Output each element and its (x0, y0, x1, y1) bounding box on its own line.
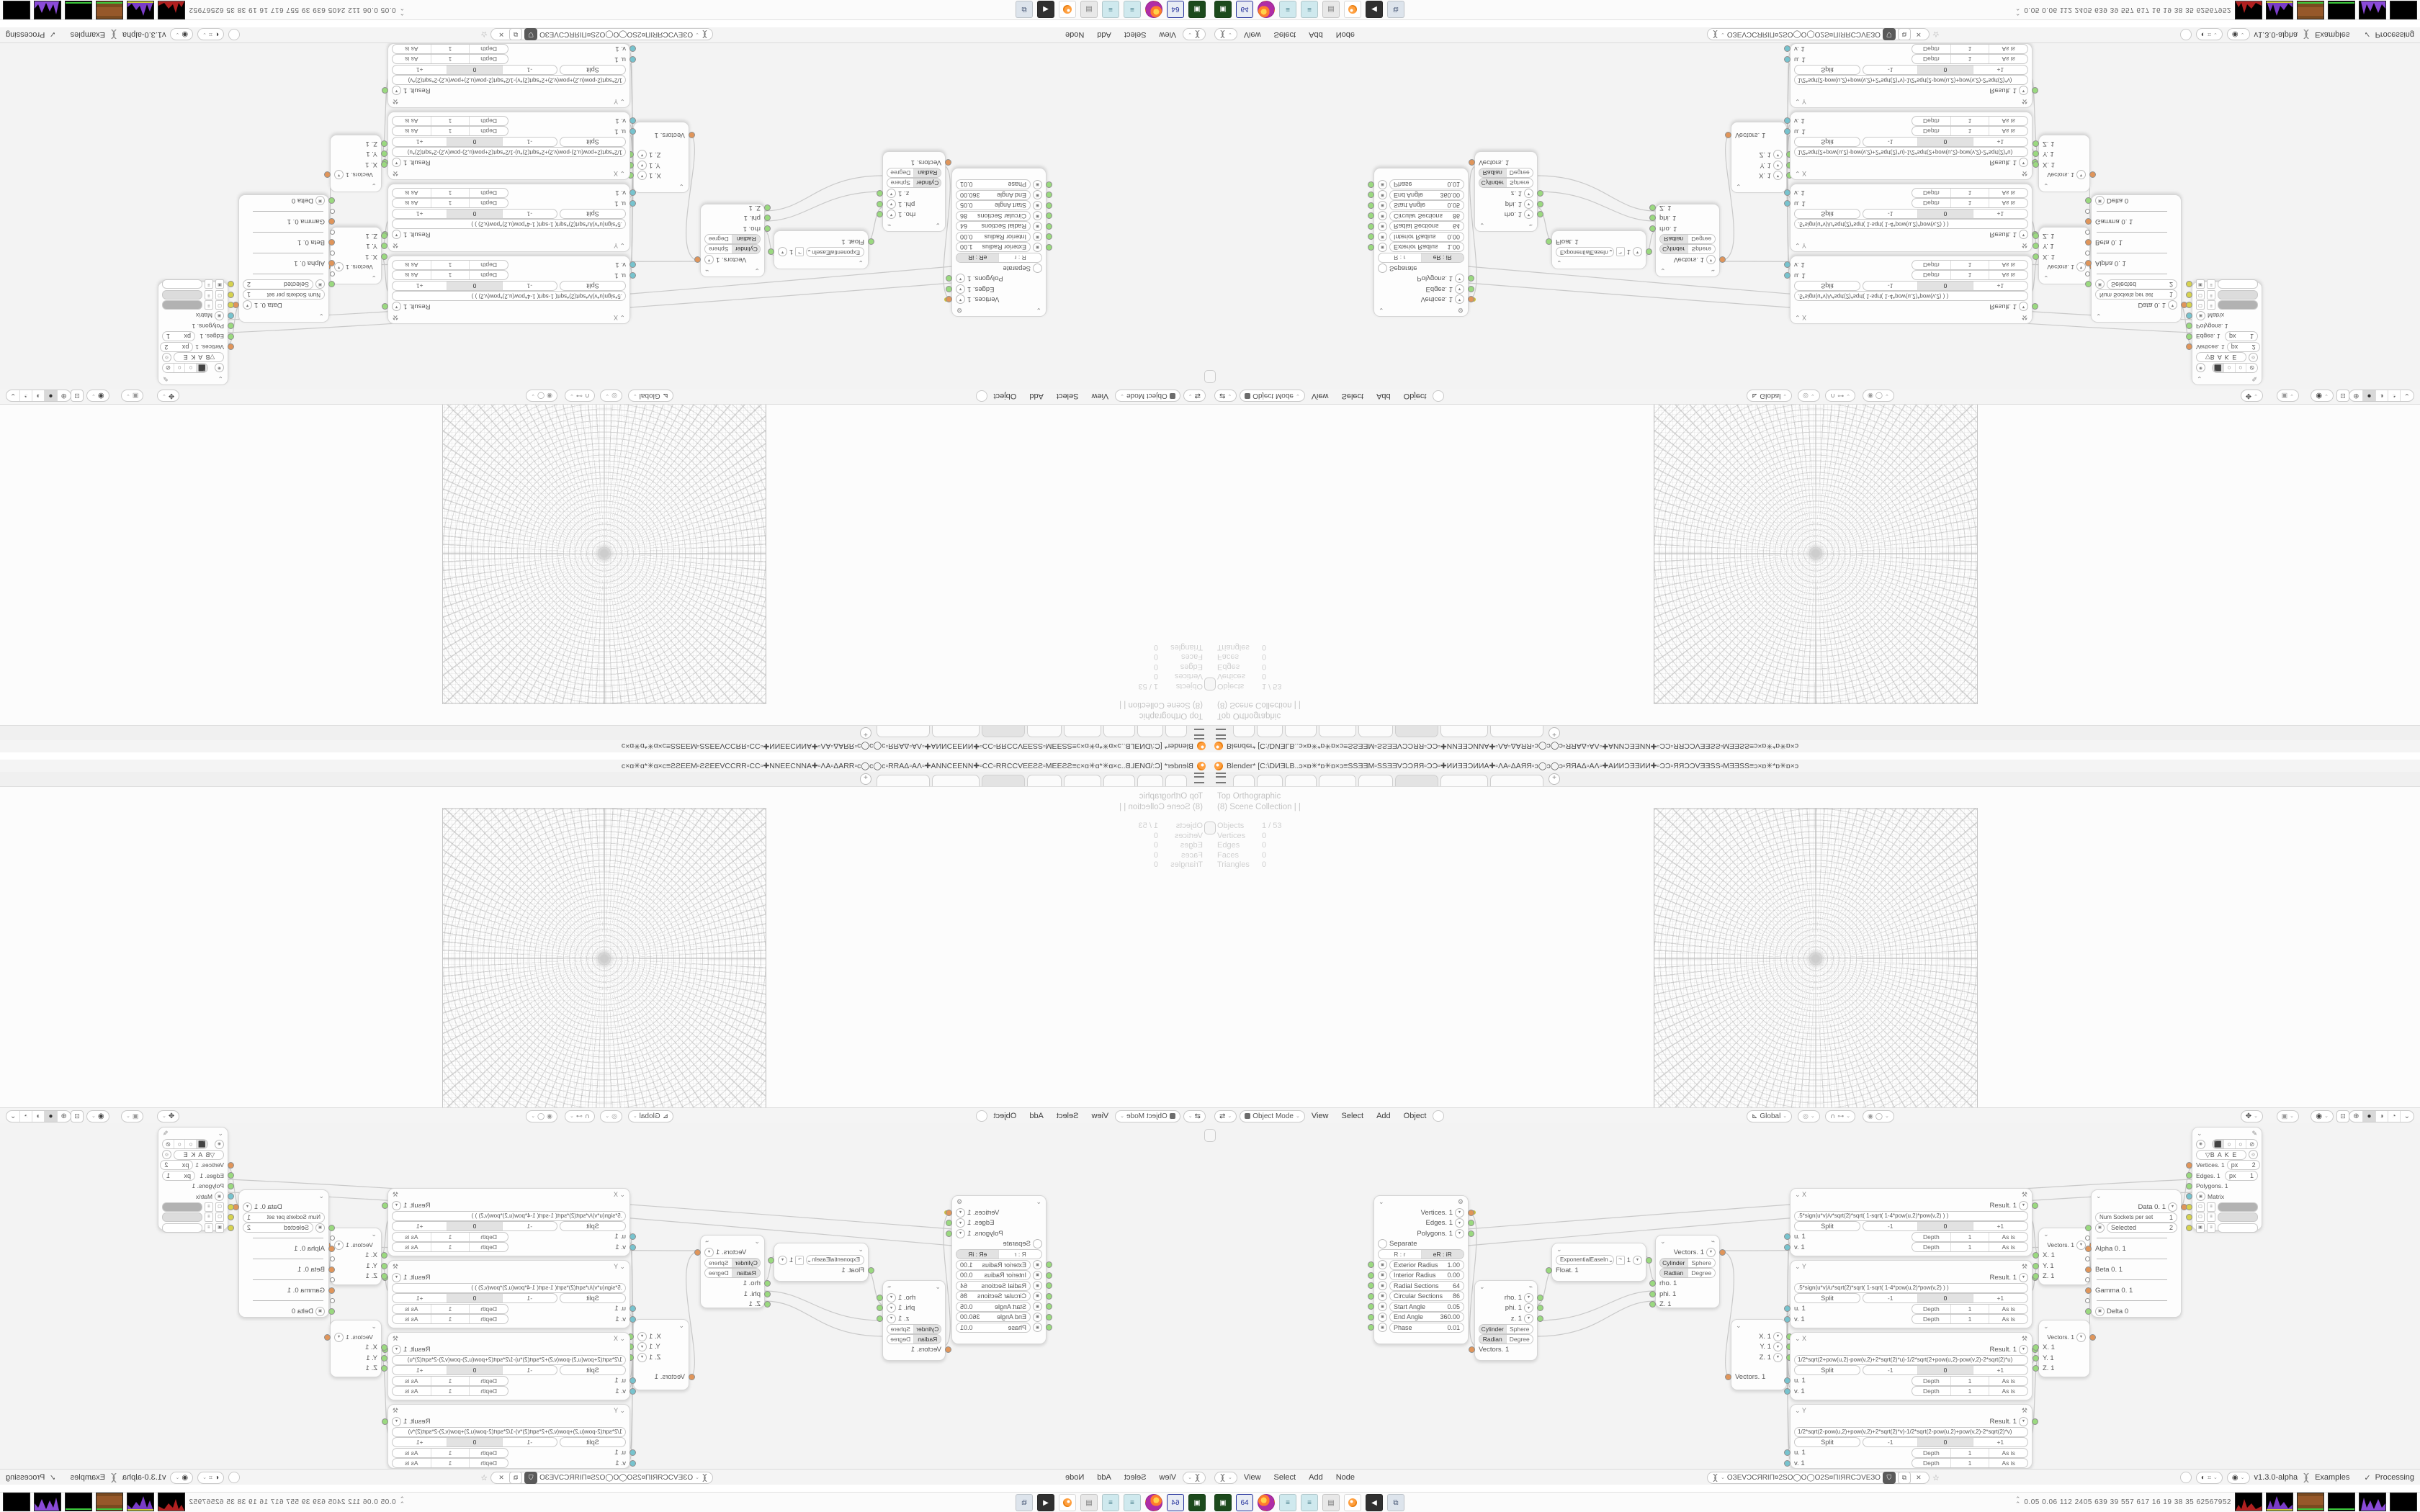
node-torus[interactable]: ⌄⚙ Vertices. 1▼ Edges. 1▼ Polygons. 1▼ S… (951, 1195, 1047, 1344)
num-sockets-field[interactable]: Num Sockets per set1 (243, 290, 325, 300)
display-verts-button[interactable]: ⬛ (196, 1140, 207, 1148)
vert-icon[interactable]: ▢ (215, 301, 224, 310)
workspace-tab-1[interactable] (1233, 726, 1255, 737)
socket-menu-button[interactable]: ▼ (1773, 150, 1783, 160)
input-socket-v[interactable] (1784, 1316, 1791, 1323)
display-dropdown[interactable]: ◉⌄ (170, 29, 193, 41)
input-socket-v[interactable] (629, 1316, 636, 1323)
input-socket-alpha[interactable] (328, 1246, 335, 1252)
menu-add[interactable]: Add (1029, 1112, 1044, 1120)
node-formula-y1[interactable]: ⌄ Y⚒ Result. 1▼ .5*sign(u*v)/u*sqrt(2)*s… (387, 184, 630, 252)
phase-slider[interactable]: Phase0.01 (956, 180, 1031, 190)
snap-dropdown[interactable]: ∩⊶⌄ (565, 390, 595, 402)
blank-socket[interactable] (2085, 1277, 2090, 1282)
output-socket-vectors[interactable] (2089, 1334, 2096, 1341)
collapse-chevron-icon[interactable]: ⌄ (218, 374, 223, 382)
xray-toggle-button[interactable]: ⊡ (2336, 1110, 2349, 1122)
shading-material-button[interactable]: ◑ (32, 1111, 44, 1122)
end-angle-slider[interactable]: End Angle360.00 (956, 1312, 1031, 1322)
viewport-3d[interactable]: Top Orthographic (8) Scene Collection | … (1210, 786, 2420, 1108)
split-button[interactable]: Split (560, 65, 626, 75)
edge-icon[interactable]: ▢ (215, 290, 224, 300)
input-socket-x[interactable] (2033, 253, 2039, 260)
socket-menu-button[interactable]: ▼ (2019, 302, 2028, 312)
collapse-chevron-icon[interactable]: ⌄ (1556, 1246, 1562, 1254)
workspace-tab-7[interactable] (932, 726, 980, 737)
socket-menu-button[interactable]: ▼ (637, 1332, 647, 1341)
input-socket-float[interactable] (868, 1267, 874, 1274)
taskbar-app-firefox-icon[interactable] (1258, 1, 1275, 18)
hamburger-menu-icon[interactable] (1194, 773, 1204, 783)
workspace-tab-8[interactable] (877, 726, 930, 737)
socket-menu-button[interactable]: ▼ (392, 1273, 401, 1282)
node-formula-x2[interactable]: ⌄ X⚒ Result. 1▼ 1/2*sqrt(2+pow(u,2)-pow(… (1790, 1332, 2033, 1400)
bake-button[interactable]: ▽ B A K E (174, 353, 224, 363)
interior-radius-slider[interactable]: Interior Radius0.00 (956, 232, 1031, 242)
node-viewer-draw[interactable]: ⌄✎ ◉⬛○○⊘ ▽ B A K E◎ Vertices. 1px2 Edges… (158, 282, 228, 385)
xray-dropdown[interactable]: ◉⌄ (86, 1110, 109, 1122)
display-verts-button[interactable]: ⬛ (2213, 1140, 2224, 1148)
socket-menu-button[interactable]: ▼ (2168, 1202, 2177, 1212)
add-workspace-button[interactable]: + (860, 727, 871, 739)
pin-icon[interactable]: ☆ (480, 30, 488, 40)
input-socket-gamma[interactable] (2085, 219, 2092, 225)
socket-menu-button[interactable]: ▼ (637, 161, 647, 170)
workspace-tab-2[interactable] (1137, 775, 1163, 786)
show-overlays-dropdown[interactable]: ▣⌄ (2277, 390, 2299, 402)
input-socket[interactable] (1046, 1324, 1052, 1331)
pivot-point-dropdown[interactable]: ◎⌄ (600, 390, 622, 402)
formula-input[interactable]: .5*sign(u*v)/v*sqrt(2)*sqrt( 1-sqrt( 1-4… (392, 1211, 626, 1221)
pivot-point-dropdown[interactable]: ◎⌄ (600, 1110, 622, 1122)
collapse-chevron-icon[interactable]: ⌄ (1556, 258, 1562, 266)
input-socket-vectors[interactable] (1469, 1346, 1475, 1353)
collapse-chevron-icon[interactable]: ⌄ (1660, 1238, 1666, 1246)
socket-menu-button[interactable]: ▼ (2076, 263, 2086, 272)
node-easing[interactable]: ⌄ ExponentialEaseIn⌄↷1▼ Float. 1 (774, 230, 869, 269)
vertex-color-swatch[interactable] (2218, 301, 2258, 310)
input-socket-phi[interactable] (764, 1291, 771, 1297)
socket-menu-button[interactable]: ▼ (392, 230, 401, 240)
input-socket-u[interactable] (629, 128, 636, 135)
shading-wireframe-button[interactable]: ⊕ (57, 1111, 71, 1122)
taskbar-app-notepad-icon[interactable]: ≡ (1279, 1, 1296, 18)
tree-selector[interactable]: ⌄ ОЗЕVϽСЯRIΠ¤2SO◯O◯O2S¤ΠIЯRСϽVЕЗО ⛉ ⧉ ✕ (490, 29, 713, 41)
input-socket-y[interactable] (2033, 151, 2039, 158)
socket-menu-button[interactable]: ▼ (778, 248, 787, 257)
sphere-option[interactable]: Sphere (1688, 246, 1716, 254)
display-edges-button[interactable]: ○ (2224, 1140, 2236, 1148)
display-edges-button[interactable]: ○ (185, 364, 197, 372)
input-socket-z[interactable] (2033, 140, 2039, 147)
collapse-chevron-icon[interactable]: ⌄ (754, 266, 760, 274)
list-icon[interactable]: ≡ (205, 1223, 213, 1233)
activate-toggle[interactable]: ◉ (215, 364, 224, 373)
socket-menu-button[interactable]: ▼ (334, 1333, 344, 1342)
node-vector-polar-output[interactable]: ⌄⌁ rho. 1▼ phi. 1▼ z. 1▼ CylinderSphere … (1474, 1280, 1538, 1361)
processing-toggle[interactable]: Processing (6, 30, 45, 39)
fake-user-shield-button[interactable]: ⛉ (524, 1472, 537, 1484)
socket-menu-button[interactable]: ▼ (1455, 284, 1464, 294)
workspace-tab-2[interactable] (1137, 726, 1163, 737)
input-socket[interactable] (1368, 1293, 1374, 1300)
examples-menu[interactable]: Examples (2315, 1473, 2349, 1482)
node-vector-polar-output[interactable]: ⌄⌁ rho. 1▼ phi. 1▼ z. 1▼ CylinderSphere … (882, 1280, 946, 1361)
tool-search-button[interactable] (1433, 1110, 1444, 1122)
proportional-editing-dropdown[interactable]: ◉◯⌄ (526, 1110, 557, 1122)
socket-menu-button[interactable]: ▼ (704, 256, 714, 265)
radian-option[interactable]: Radian (1479, 1335, 1507, 1344)
fake-user-shield-button[interactable]: ⛉ (1883, 29, 1896, 41)
toolbar-collapse-handle[interactable] (1204, 678, 1210, 690)
input-socket-float[interactable] (1546, 238, 1552, 245)
collapse-chevron-icon[interactable]: ⌄ (1379, 1198, 1384, 1206)
workspace-tab-1[interactable] (1165, 775, 1187, 786)
toolbar-collapse-handle[interactable] (1204, 822, 1210, 834)
draft-mode-dropdown[interactable]: ◐⌗⌄ (197, 29, 224, 41)
separate-toggle[interactable] (1033, 264, 1042, 273)
menu-view[interactable]: View (1244, 1473, 1261, 1482)
blank-socket[interactable] (330, 230, 335, 235)
wrap-plus[interactable]: +1 (393, 282, 447, 290)
input-socket-y[interactable] (381, 1263, 387, 1269)
input-socket-y[interactable] (381, 1355, 387, 1362)
socket-menu-button[interactable]: ▼ (1524, 1293, 1533, 1302)
cylinder-option[interactable]: Cylinder (1660, 1259, 1688, 1267)
output-socket-result[interactable] (2032, 1202, 2038, 1209)
vertex-color-swatch[interactable] (2218, 1202, 2258, 1212)
transform-orientation-dropdown[interactable]: ⊾Global⌄ (1747, 1110, 1792, 1122)
taskbar-app-speaker-icon[interactable]: ◀ (1037, 1, 1054, 18)
socket-menu-button[interactable]: ▼ (2076, 171, 2086, 180)
workspace-tab-4[interactable] (1319, 726, 1356, 737)
sphere-option[interactable]: Sphere (705, 1259, 732, 1267)
input-socket-v[interactable] (629, 1460, 636, 1467)
shading-solid-button[interactable]: ● (2363, 391, 2375, 402)
as-is-dropdown[interactable]: As is (393, 1233, 431, 1241)
input-socket-face-color[interactable] (2186, 1225, 2192, 1231)
edge-width-field[interactable]: px1 (162, 1171, 195, 1181)
list-icon[interactable]: ≡ (2207, 1202, 2215, 1212)
taskbar-app-notepad2-icon[interactable]: ≡ (1102, 1494, 1119, 1511)
input-socket-x[interactable] (381, 253, 387, 260)
output-socket[interactable] (768, 1257, 774, 1264)
socket-menu-button[interactable]: ▼ (392, 86, 401, 96)
formula-input[interactable]: .5*sign(u*v)/u*sqrt(2)*sqrt( 1-sqrt( 1-4… (392, 220, 626, 230)
radian-option[interactable]: Radian (1660, 235, 1688, 243)
xray-toggle-button[interactable]: ⊡ (71, 1110, 84, 1122)
input-socket-phi[interactable] (1649, 1291, 1656, 1297)
socket-menu-button[interactable]: ▼ (1706, 256, 1716, 265)
easing-mode-dropdown[interactable]: ExponentialEaseIn⌄ (806, 1255, 864, 1265)
input-socket-delta[interactable] (328, 1308, 335, 1315)
socket-menu-button[interactable]: ▼ (956, 1208, 965, 1218)
collapse-chevron-icon[interactable]: ⌄ X (1795, 1191, 1806, 1199)
menu-add[interactable]: Add (1309, 1473, 1323, 1482)
input-socket[interactable] (1368, 202, 1374, 209)
bake-button[interactable]: ▽ B A K E (174, 1150, 224, 1160)
interior-radius-slider[interactable]: Interior Radius0.00 (956, 1270, 1031, 1280)
collapse-chevron-icon[interactable]: ⌄ (371, 1230, 377, 1238)
processing-toggle[interactable]: Processing (2375, 1473, 2414, 1482)
input-socket-y[interactable] (2033, 1355, 2039, 1362)
extra-options-button[interactable]: ◎ (162, 353, 171, 362)
node-torus[interactable]: ⌄⚙ Vertices. 1▼ Edges. 1▼ Polygons. 1▼ S… (951, 168, 1047, 317)
node-formula-y1[interactable]: ⌄ Y⚒ Result. 1▼ .5*sign(u*v)/u*sqrt(2)*s… (387, 1260, 630, 1328)
node-formula-y1[interactable]: ⌄ Y⚒ Result. 1▼ .5*sign(u*v)/u*sqrt(2)*s… (1790, 1260, 2033, 1328)
output-socket[interactable] (768, 249, 774, 256)
input-socket-v[interactable] (1784, 46, 1791, 53)
input-socket-x[interactable] (381, 1344, 387, 1351)
display-verts-button[interactable]: ⬛ (2213, 364, 2224, 372)
formula-input[interactable]: 1/2*sqrt(2+pow(u,2)-pow(v,2)+2*sqrt(2)*u… (1794, 1355, 2028, 1365)
blank-socket[interactable] (330, 271, 335, 276)
node-vector-polar-input[interactable]: ⌄⌁ Vectors. 1▼ CylinderSphere RadianDegr… (700, 1235, 765, 1308)
input-socket[interactable] (1046, 1282, 1052, 1289)
input-socket-gamma[interactable] (2085, 1287, 2092, 1294)
workspace-tab-8[interactable] (877, 775, 930, 786)
edge-icon[interactable]: ▢ (215, 1212, 224, 1222)
socket-menu-button[interactable]: ▼ (1455, 295, 1464, 305)
input-socket-v[interactable] (629, 1388, 636, 1395)
cylinder-option[interactable]: Cylinder (732, 1259, 761, 1267)
input-socket[interactable] (1368, 1303, 1374, 1310)
collapse-chevron-icon[interactable]: ⌄ Y (1795, 1263, 1806, 1271)
node-formula-x1[interactable]: ⌄ X⚒ Result. 1▼ .5*sign(u*v)/v*sqrt(2)*s… (1790, 1188, 2033, 1256)
taskbar-app-notepad2-icon[interactable]: ≡ (1301, 1, 1318, 18)
editor-type-dropdown[interactable]: ⌄ (1214, 29, 1237, 41)
menu-select[interactable]: Select (1274, 30, 1296, 39)
face-icon[interactable]: ▣ (215, 280, 224, 289)
chevrons-up-icon[interactable]: ⌃⌃ (400, 1497, 405, 1507)
unlink-button[interactable]: ✕ (496, 30, 507, 40)
node-formula-y2[interactable]: ⌄ Y⚒ Result. 1▼ 1/2*sqrt(2-pow(u,2)+pow(… (1790, 43, 2033, 108)
pivot-point-dropdown[interactable]: ◎⌄ (1798, 1110, 1820, 1122)
input-socket-z[interactable] (2033, 1273, 2039, 1279)
workspace-tab-7[interactable] (1440, 775, 1488, 786)
socket-menu-button[interactable]: ▼ (1773, 1353, 1783, 1362)
output-socket-edges[interactable] (946, 1220, 952, 1226)
sphere-option[interactable]: Sphere (1507, 1325, 1533, 1333)
examples-menu[interactable]: Examples (2315, 30, 2349, 39)
input-socket-face-color[interactable] (228, 1225, 234, 1231)
socket-menu-button[interactable]: ▼ (334, 263, 344, 272)
chevrons-up-icon[interactable]: ⌃⌃ (400, 5, 405, 15)
workspace-tab-3[interactable] (1285, 775, 1317, 786)
input-socket[interactable] (1368, 1272, 1374, 1279)
input-socket-z[interactable] (764, 204, 771, 211)
split-button[interactable]: Split (560, 209, 626, 219)
input-socket-matrix[interactable] (228, 1193, 234, 1200)
menu-select[interactable]: Select (1342, 392, 1364, 400)
socket-menu-button[interactable]: ▼ (1455, 1218, 1464, 1228)
as-is-dropdown[interactable]: As is (1989, 271, 2027, 280)
radial-sections-slider[interactable]: Radial Sections64 (956, 222, 1031, 232)
list-icon[interactable]: ≡ (2207, 301, 2215, 310)
display-off-button[interactable]: ⊘ (2246, 364, 2257, 372)
list-icon[interactable]: ≡ (205, 280, 213, 289)
blank-socket[interactable] (2085, 1236, 2090, 1241)
workspace-tab-3[interactable] (1285, 726, 1317, 737)
collapse-chevron-icon[interactable]: ⌄ Y (614, 241, 625, 249)
radian-option[interactable]: Radian (732, 235, 761, 243)
input-socket-v[interactable] (1784, 1388, 1791, 1395)
formula-input[interactable]: .5*sign(u*v)/u*sqrt(2)*sqrt( 1-sqrt( 1-4… (392, 1283, 626, 1293)
extra-options-button[interactable]: ◎ (162, 1150, 171, 1159)
menu-select[interactable]: Select (1057, 392, 1079, 400)
taskbar-app-save64-icon[interactable]: 64 (1167, 1494, 1184, 1511)
output-socket-rho[interactable] (1537, 1295, 1543, 1301)
input-socket[interactable] (1046, 1293, 1052, 1300)
output-socket-result[interactable] (2032, 1418, 2038, 1425)
split-button[interactable]: Split (1794, 65, 1860, 75)
input-socket-vectors[interactable] (945, 1346, 951, 1353)
radian-option[interactable]: Radian (914, 1335, 941, 1344)
menu-view[interactable]: View (1159, 1473, 1176, 1482)
socket-menu-button[interactable]: ▼ (637, 171, 647, 181)
socket-menu-button[interactable]: ▼ (956, 1229, 965, 1238)
node-easing[interactable]: ⌄ ExponentialEaseIn⌄↷1▼ Float. 1 (1551, 1243, 1646, 1282)
input-socket-x[interactable] (2033, 1344, 2039, 1351)
blank-socket[interactable] (2085, 271, 2090, 276)
node-vector-in-2[interactable]: ⌄ Vectors. 1▼ X. 1 Y. 1 Z. 1 (330, 135, 382, 192)
input-socket-vectors[interactable] (689, 1374, 695, 1380)
input-socket-edges[interactable] (2186, 333, 2192, 340)
node-formula-y2[interactable]: ⌄ Y⚒ Result. 1▼ 1/2*sqrt(2-pow(u,2)+pow(… (387, 43, 630, 108)
collapse-chevron-icon[interactable]: ⌄ (1660, 266, 1666, 274)
workspace-tab-4[interactable] (1319, 775, 1356, 786)
socket-menu-button[interactable]: ▼ (1524, 1303, 1533, 1313)
formula-input[interactable]: 1/2*sqrt(2-pow(u,2)+pow(v,2)+2*sqrt(2)*v… (392, 1427, 626, 1437)
sphere-option[interactable]: Sphere (1507, 179, 1533, 188)
split-button[interactable]: Split (560, 1437, 626, 1447)
taskbar-app-window-icon[interactable]: ▤ (1080, 1494, 1098, 1511)
mode-major-minor[interactable]: R : r (1379, 253, 1422, 262)
num-sockets-field[interactable]: Num Sockets per set1 (2095, 290, 2177, 300)
radian-option[interactable]: Radian (1479, 168, 1507, 177)
end-angle-slider[interactable]: End Angle360.00 (1389, 190, 1464, 200)
draft-mode-dropdown[interactable]: ◐⌗⌄ (197, 1472, 224, 1484)
input-socket-delta[interactable] (2085, 1308, 2092, 1315)
workspace-tab-8[interactable] (1490, 775, 1543, 786)
workspace-tab-8[interactable] (1490, 726, 1543, 737)
split-button[interactable]: Split (1794, 137, 1860, 147)
vertex-size-field[interactable]: px2 (2227, 1160, 2260, 1170)
formula-input[interactable]: 1/2*sqrt(2-pow(u,2)+pow(v,2)+2*sqrt(2)*v… (1794, 1427, 2028, 1437)
mode-dropdown[interactable]: Object Mode⌄ (1240, 390, 1305, 402)
collapse-chevron-icon[interactable]: ⌄ (858, 258, 864, 266)
display-faces-button[interactable]: ○ (2236, 1140, 2247, 1148)
list-icon[interactable]: ≡ (205, 301, 213, 310)
vert-icon[interactable]: ▢ (215, 1202, 224, 1212)
socket-menu-button[interactable]: ▼ (1773, 1342, 1783, 1351)
split-button[interactable]: Split (560, 1221, 626, 1231)
output-socket-result[interactable] (382, 1202, 388, 1209)
wrap-minus[interactable]: -1 (1863, 1222, 1918, 1230)
as-is-dropdown[interactable]: As is (1989, 1233, 2027, 1241)
radian-option[interactable]: Radian (732, 1269, 761, 1277)
input-socket-selected[interactable] (2085, 282, 2092, 288)
input-socket-z[interactable] (381, 233, 387, 239)
node-torus[interactable]: ⌄⚙ Vertices. 1▼ Edges. 1▼ Polygons. 1▼ S… (1373, 168, 1469, 317)
update-indicator[interactable] (228, 1472, 240, 1483)
split-button[interactable]: Split (560, 1293, 626, 1303)
mode-ext-int[interactable]: eR : iR (956, 253, 999, 262)
shading-wireframe-button[interactable]: ⊕ (2349, 1111, 2363, 1122)
socket-menu-button[interactable]: ▼ (1524, 199, 1533, 209)
face-icon[interactable]: ▣ (2196, 280, 2205, 289)
workspace-tab-2[interactable] (1257, 775, 1283, 786)
display-edges-button[interactable]: ○ (185, 1140, 197, 1148)
display-dropdown[interactable]: ◉⌄ (170, 1472, 193, 1484)
socket-menu-button[interactable]: ▼ (1524, 189, 1533, 199)
blank-socket[interactable] (2085, 251, 2090, 256)
input-socket[interactable] (1046, 1314, 1052, 1320)
input-socket-edge-color[interactable] (2186, 292, 2192, 298)
wrap-zero[interactable]: 0 (1918, 1222, 1973, 1230)
output-socket-result[interactable] (382, 88, 388, 94)
end-angle-slider[interactable]: End Angle360.00 (956, 190, 1031, 200)
tree-selector[interactable]: ⌄ ОЗЕVϽСЯRIΠ¤2SO◯O◯O2S¤ΠIЯRСϽVЕЗО ⛉ ⧉ ✕ (1707, 29, 1930, 41)
socket-menu-button[interactable]: ▼ (1773, 171, 1783, 181)
menu-view[interactable]: View (1312, 1112, 1329, 1120)
draft-mode-dropdown[interactable]: ◐⌗⌄ (2196, 1472, 2223, 1484)
menu-object[interactable]: Object (994, 392, 1017, 400)
blank-socket[interactable] (2085, 230, 2090, 235)
collapse-chevron-icon[interactable]: ⌄ (1379, 306, 1384, 314)
taskbar-app-blender-icon[interactable] (1344, 1, 1361, 18)
socket-menu-button[interactable]: ▼ (334, 1241, 344, 1250)
examples-menu[interactable]: Examples (71, 1473, 105, 1482)
input-socket-z[interactable] (2033, 1365, 2039, 1372)
phase-slider[interactable]: Phase0.01 (1389, 180, 1464, 190)
proportional-editing-dropdown[interactable]: ◉◯⌄ (526, 390, 557, 402)
node-easing[interactable]: ⌄ ExponentialEaseIn⌄↷1▼ Float. 1 (1551, 230, 1646, 269)
face-icon[interactable]: ▣ (2196, 1223, 2205, 1233)
input-socket[interactable] (1368, 213, 1374, 220)
taskbar-app-window-icon[interactable]: ▤ (1322, 1, 1340, 18)
socket-menu-button[interactable]: ▼ (1773, 1332, 1783, 1341)
pin-icon[interactable]: ☆ (1932, 30, 1940, 40)
display-edges-button[interactable]: ○ (2224, 364, 2236, 372)
node-vector-polar-input[interactable]: ⌄⌁ Vectors. 1▼ CylinderSphere RadianDegr… (1655, 1235, 1720, 1308)
collapse-chevron-icon[interactable]: ⌄ Y (614, 1407, 625, 1415)
socket-menu-button[interactable]: ▼ (1773, 161, 1783, 170)
display-off-button[interactable]: ⊘ (163, 364, 174, 372)
collapse-chevron-icon[interactable]: ⌄ Y (1795, 1407, 1806, 1415)
output-socket-vertices[interactable] (1468, 1210, 1474, 1216)
socket-menu-button[interactable]: ▼ (2076, 1333, 2086, 1342)
node-vector-polar-output[interactable]: ⌄⌁ rho. 1▼ phi. 1▼ z. 1▼ CylinderSphere … (1474, 151, 1538, 232)
taskbar-app-explorer-icon[interactable]: ⧉ (1387, 1, 1404, 18)
face-color-swatch[interactable] (2218, 280, 2258, 289)
input-socket[interactable] (1368, 223, 1374, 230)
node-formula-x2[interactable]: ⌄ X⚒ Result. 1▼ 1/2*sqrt(2+pow(u,2)-pow(… (387, 1332, 630, 1400)
chevrons-up-icon[interactable]: ⌃⌃ (2015, 5, 2021, 15)
taskbar-app-notepad-icon[interactable]: ≡ (1124, 1, 1141, 18)
selected-field[interactable]: Selected2 (2107, 279, 2177, 289)
socket-menu-button[interactable]: ▼ (956, 274, 965, 284)
input-socket-beta[interactable] (328, 1266, 335, 1273)
shading-material-button[interactable]: ◑ (2376, 391, 2388, 402)
output-socket-phi[interactable] (877, 1305, 883, 1311)
face-color-swatch[interactable] (162, 280, 202, 289)
edge-color-swatch[interactable] (162, 290, 202, 300)
collapse-chevron-icon[interactable]: ⌄ Y (1795, 241, 1806, 249)
collapse-chevron-icon[interactable]: ⌄ (1736, 182, 1742, 190)
vertex-color-swatch[interactable] (162, 1202, 202, 1212)
input-socket-vertices[interactable] (228, 1162, 234, 1169)
